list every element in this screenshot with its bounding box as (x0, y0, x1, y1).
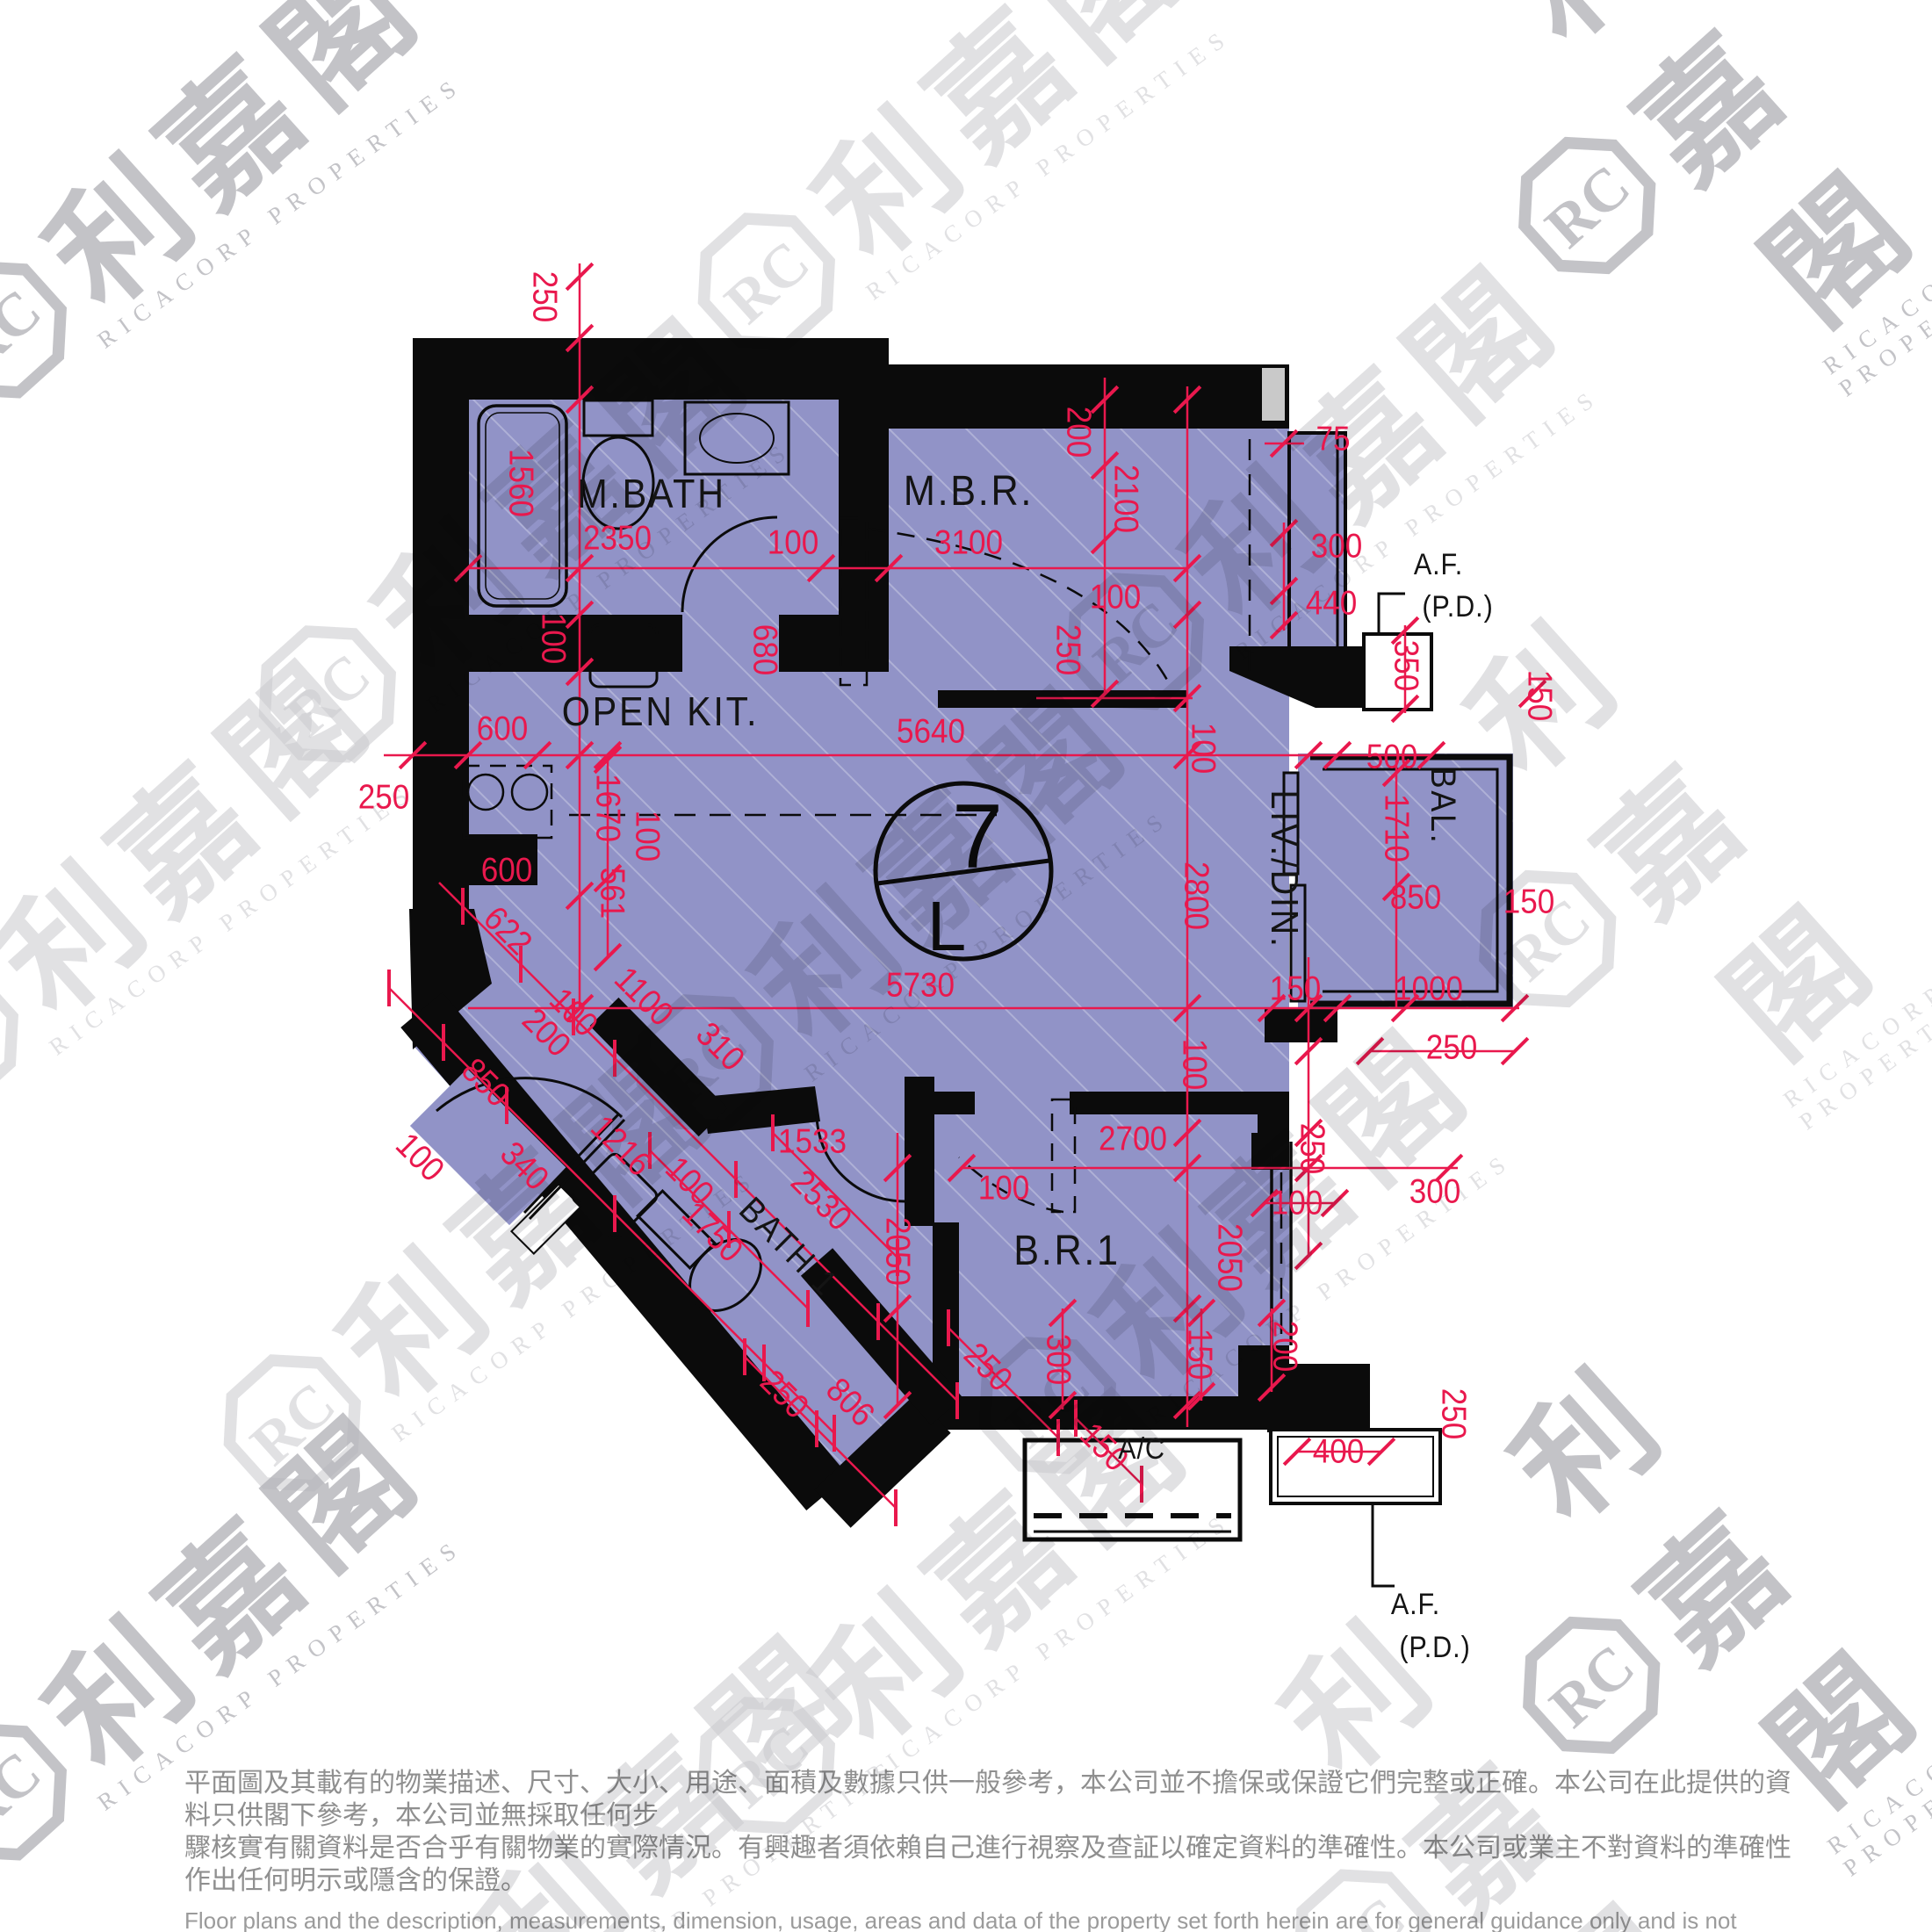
af-pd-boxes (1271, 594, 1440, 1586)
floorplan-drawing: 7 L (0, 0, 1932, 1932)
disclaimer: 平面圖及其載有的物業描述、尺寸、大小、用途、面積及數據只供一般參考，本公司並不擔… (184, 1767, 1791, 1932)
unit-floor: 7 (952, 786, 1003, 888)
disclaimer-zh-1: 平面圖及其載有的物業描述、尺寸、大小、用途、面積及數據只供一般參考，本公司並不擔… (184, 1767, 1791, 1832)
unit-flat: L (927, 887, 967, 965)
disclaimer-zh-2: 驟核實有關資料是否合乎有關物業的實際情況。有興趣者須依賴自己進行視察及查証以確定… (184, 1832, 1791, 1897)
floorplan-canvas: 7 L RC 利嘉閣 RICACORP PROPERTIES RC 利嘉閣 RI… (0, 0, 1932, 1932)
disclaimer-en-1: Floor plans and the description, measure… (184, 1909, 1791, 1932)
